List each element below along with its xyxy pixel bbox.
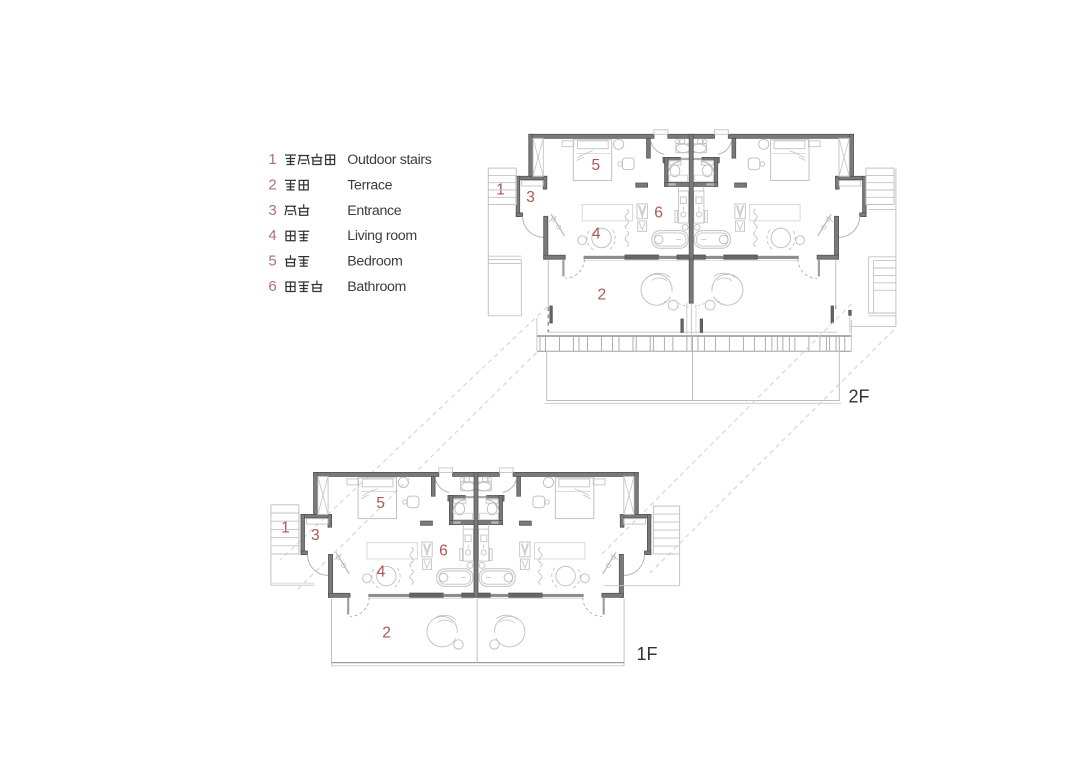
svg-text:6: 6 (268, 278, 276, 295)
svg-text:5: 5 (268, 253, 276, 270)
svg-text:1: 1 (268, 151, 276, 168)
svg-text:Bedroom: Bedroom (347, 254, 402, 270)
svg-text:Bathroom: Bathroom (347, 279, 406, 295)
svg-text:Living room: Living room (347, 228, 417, 244)
svg-text:1F: 1F (636, 644, 657, 664)
svg-text:2F: 2F (848, 387, 869, 407)
svg-text:2: 2 (268, 176, 276, 193)
svg-text:Outdoor stairs: Outdoor stairs (347, 152, 431, 168)
svg-text:Entrance: Entrance (347, 203, 401, 219)
svg-text:4: 4 (268, 227, 276, 244)
svg-text:Terrace: Terrace (347, 177, 392, 193)
svg-text:3: 3 (268, 202, 276, 219)
